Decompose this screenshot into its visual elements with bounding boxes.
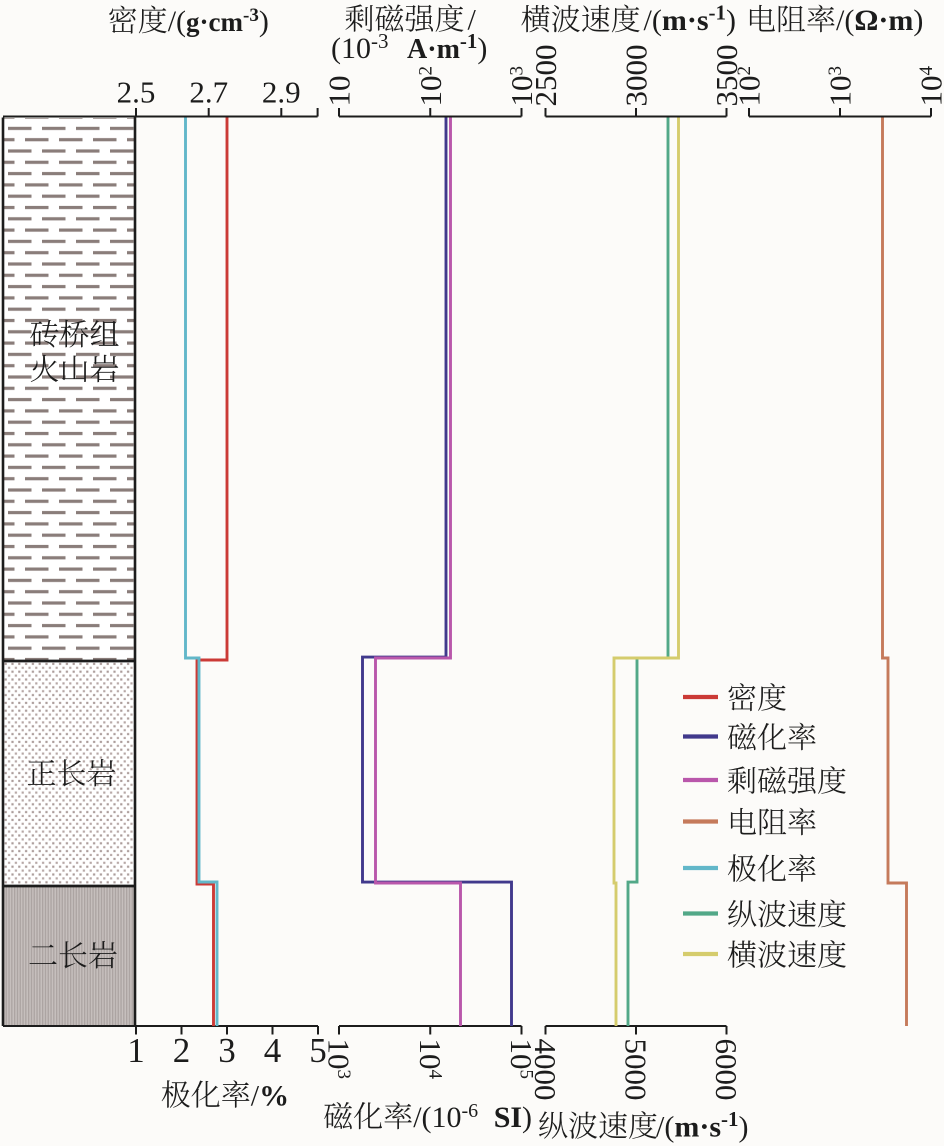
svg-text:6000: 6000 <box>709 1039 744 1101</box>
svg-text:5000: 5000 <box>619 1039 654 1101</box>
svg-text:/%: /% <box>251 1080 289 1113</box>
svg-text:1: 1 <box>127 1031 145 1070</box>
svg-text:2: 2 <box>173 1031 191 1070</box>
svg-text:/(Ω·m): /(Ω·m) <box>836 4 923 37</box>
svg-text:4000: 4000 <box>528 1039 563 1101</box>
svg-text:10: 10 <box>322 76 357 107</box>
svg-text:4: 4 <box>264 1031 282 1070</box>
svg-text:2.7: 2.7 <box>189 75 228 110</box>
svg-text:2500: 2500 <box>528 45 563 107</box>
svg-text:2.5: 2.5 <box>117 75 156 110</box>
svg-text:3000: 3000 <box>619 45 654 107</box>
svg-text:2.9: 2.9 <box>262 75 301 110</box>
svg-text:3: 3 <box>218 1031 236 1070</box>
